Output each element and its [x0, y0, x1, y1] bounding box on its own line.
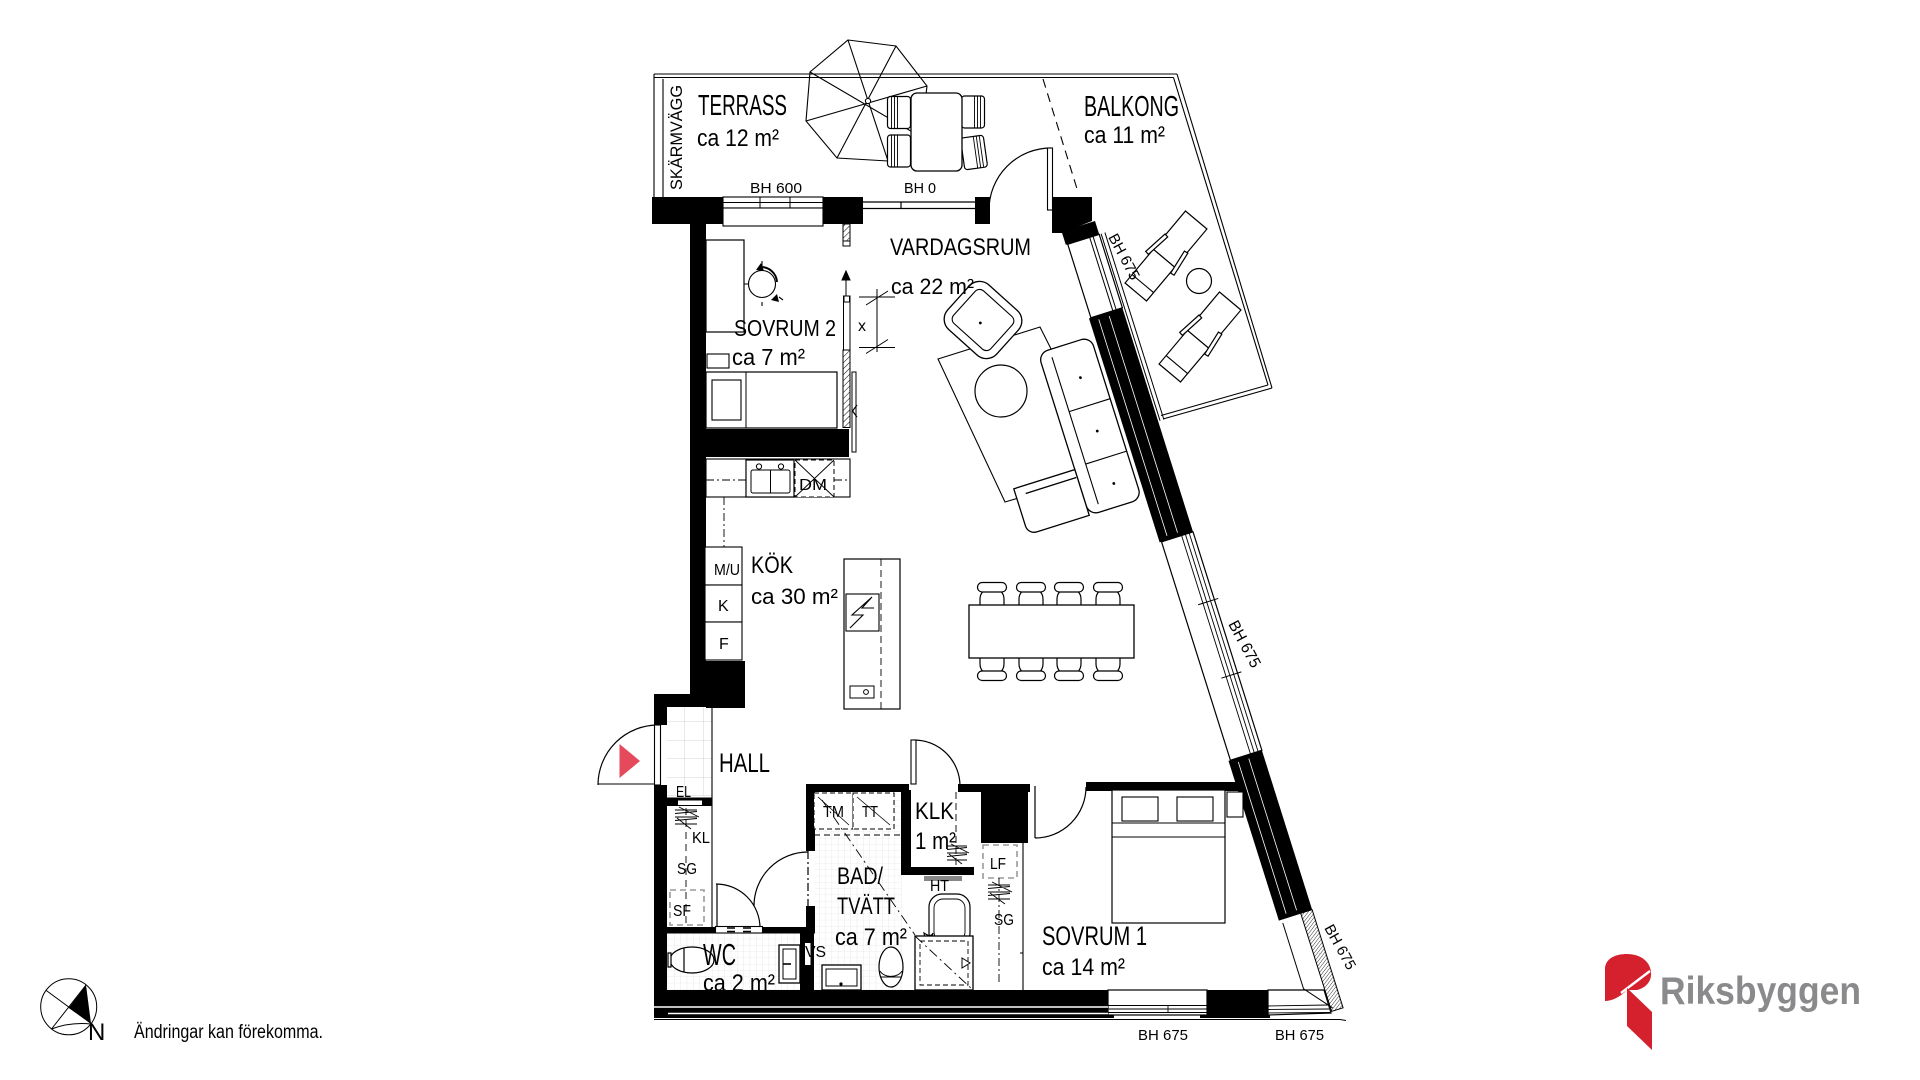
svg-text:BH 0: BH 0 — [904, 180, 936, 197]
svg-text:ca 7 m²: ca 7 m² — [835, 924, 907, 951]
svg-text:ca 11 m²: ca 11 m² — [1084, 122, 1165, 149]
svg-text:BALKONG: BALKONG — [1084, 91, 1179, 123]
svg-text:ca 30 m²: ca 30 m² — [751, 584, 838, 609]
svg-text:Riksbyggen: Riksbyggen — [1660, 970, 1861, 1013]
svg-text:x: x — [858, 318, 866, 335]
svg-text:TT: TT — [862, 804, 878, 821]
svg-text:SG: SG — [994, 912, 1014, 929]
svg-text:WC: WC — [703, 937, 736, 972]
svg-text:BAD/: BAD/ — [837, 863, 883, 890]
svg-text:SKÄRMVÄGG: SKÄRMVÄGG — [667, 85, 686, 190]
svg-text:ca 12 m²: ca 12 m² — [697, 125, 779, 152]
svg-text:HT: HT — [930, 878, 949, 895]
svg-text:BH 675: BH 675 — [1275, 1027, 1324, 1044]
svg-text:K: K — [718, 598, 729, 615]
svg-text:M/U: M/U — [714, 562, 740, 579]
svg-text:VS: VS — [805, 944, 826, 961]
svg-text:SG: SG — [677, 861, 697, 878]
svg-text:EL: EL — [676, 784, 691, 801]
svg-text:KLK: KLK — [915, 798, 954, 825]
svg-text:SOVRUM 1: SOVRUM 1 — [1042, 921, 1147, 951]
svg-text:LF: LF — [990, 856, 1006, 873]
svg-text:VARDAGSRUM: VARDAGSRUM — [890, 234, 1031, 261]
svg-text:DM: DM — [799, 477, 827, 494]
svg-text:ca 14 m²: ca 14 m² — [1042, 954, 1125, 981]
svg-text:F: F — [719, 636, 729, 653]
svg-text:SOVRUM 2: SOVRUM 2 — [734, 315, 836, 341]
svg-text:TERRASS: TERRASS — [698, 90, 787, 122]
svg-text:ca 7 m²: ca 7 m² — [732, 344, 805, 370]
svg-text:TVÄTT: TVÄTT — [837, 893, 895, 920]
svg-text:HALL: HALL — [719, 748, 770, 778]
svg-text:N: N — [88, 1019, 105, 1046]
svg-text:TM: TM — [823, 804, 844, 821]
svg-text:1 m²: 1 m² — [915, 828, 956, 855]
svg-text:KL: KL — [692, 830, 710, 847]
svg-text:Ändringar kan förekomma.: Ändringar kan förekomma. — [134, 1022, 323, 1043]
svg-text:ca 2 m²: ca 2 m² — [703, 970, 775, 997]
svg-text:BH 600: BH 600 — [750, 180, 802, 197]
svg-text:KÖK: KÖK — [751, 552, 793, 579]
svg-text:BH 675: BH 675 — [1138, 1027, 1188, 1044]
svg-text:SF: SF — [673, 903, 691, 920]
svg-text:ca 22 m²: ca 22 m² — [891, 274, 974, 299]
